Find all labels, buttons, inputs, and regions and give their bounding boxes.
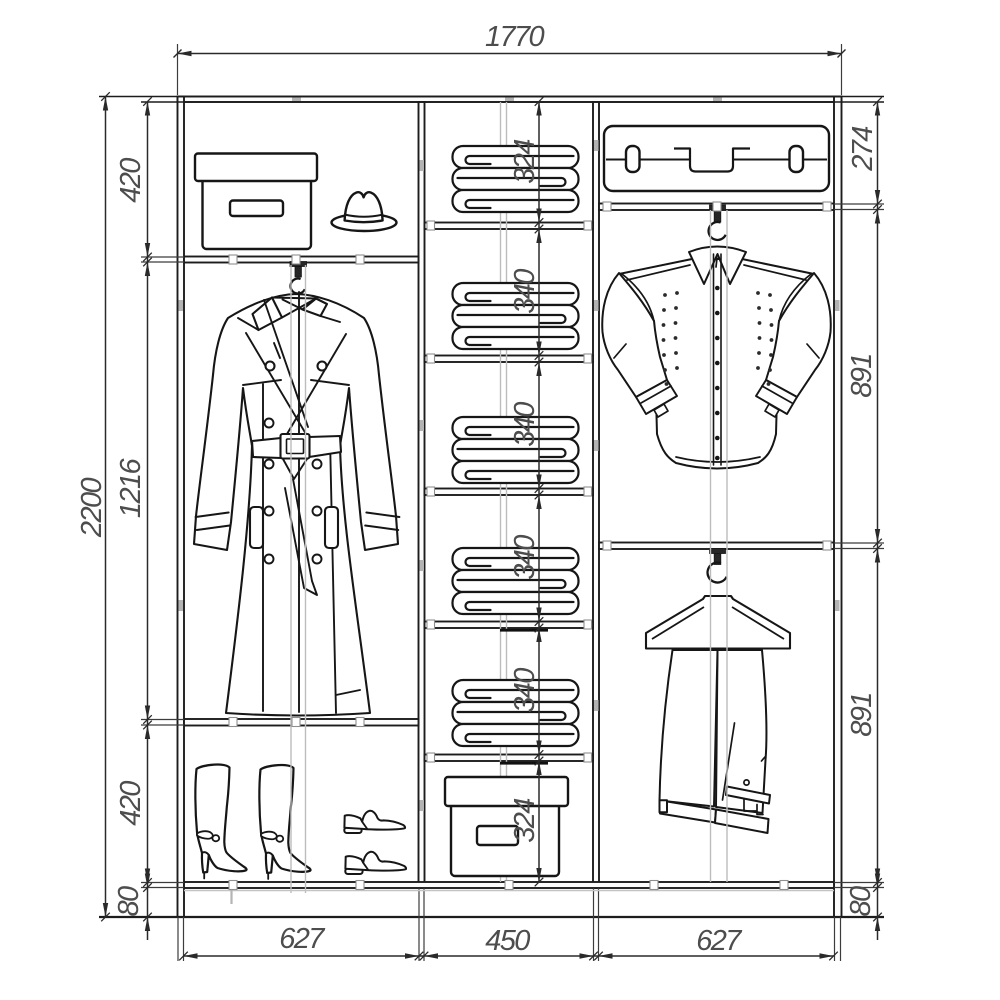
svg-text:1216: 1216 — [115, 457, 147, 518]
svg-text:340: 340 — [509, 402, 541, 447]
svg-text:340: 340 — [509, 535, 541, 580]
svg-text:2200: 2200 — [76, 477, 108, 538]
svg-text:450: 450 — [485, 925, 530, 957]
svg-text:627: 627 — [279, 923, 326, 955]
svg-text:324: 324 — [509, 139, 541, 184]
svg-text:420: 420 — [115, 781, 147, 826]
svg-text:324: 324 — [509, 798, 541, 843]
svg-text:1770: 1770 — [485, 21, 545, 53]
svg-text:627: 627 — [696, 925, 743, 957]
svg-text:420: 420 — [115, 158, 147, 203]
svg-text:80: 80 — [845, 886, 877, 917]
svg-text:891: 891 — [846, 354, 878, 398]
svg-text:274: 274 — [847, 126, 879, 172]
svg-text:891: 891 — [846, 693, 878, 737]
svg-text:80: 80 — [113, 886, 145, 917]
svg-text:340: 340 — [509, 668, 541, 713]
svg-text:340: 340 — [509, 269, 541, 314]
